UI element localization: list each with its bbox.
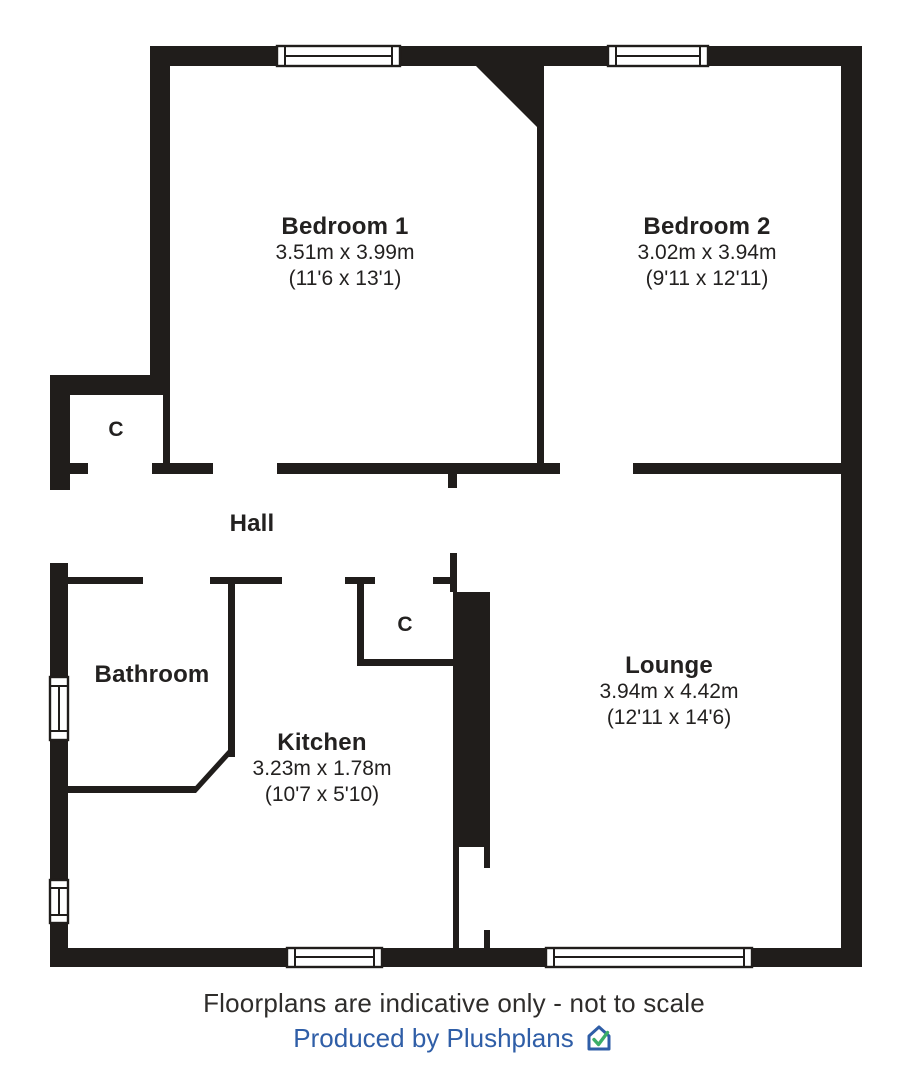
room-dims-metric: 3.51m x 3.99m: [276, 240, 415, 266]
wall-hall-top-1: [68, 463, 88, 474]
disclaimer-text: Floorplans are indicative only - not to …: [0, 988, 908, 1019]
room-dims-imperial: (10'7 x 5'10): [253, 782, 392, 808]
wall-closet-left: [50, 375, 70, 490]
wall-bathroom-bottom: [68, 786, 196, 793]
room-dims-metric: 3.94m x 4.42m: [600, 679, 739, 705]
wall-top-right: [708, 46, 860, 66]
wall-bottom-middle: [382, 948, 546, 967]
wall-kitchen-closet-top-1: [345, 577, 375, 584]
wall-bedroom-divider: [537, 125, 544, 474]
credit-text: Produced by Plushplans: [293, 1023, 573, 1054]
room-dims-imperial: (12'11 x 14'6): [600, 705, 739, 731]
wall-bathroom-right: [228, 584, 235, 757]
closet-label-hall: C: [108, 418, 123, 442]
closet-label-kitchen: C: [397, 613, 412, 637]
credit-line: Produced by Plushplans: [0, 1022, 908, 1054]
logo-checkmark: [594, 1033, 608, 1045]
room-name: Kitchen: [253, 729, 392, 756]
window-bedroom1: [277, 46, 400, 66]
wall-lounge-west-stub-2: [484, 930, 490, 948]
room-label-bedroom2: Bedroom 2 3.02m x 3.94m (9'11 x 12'11): [638, 213, 777, 292]
wall-bathroom-top-1: [68, 577, 143, 584]
window-kitchen-side: [50, 880, 68, 923]
wall-left-lower-1: [50, 563, 68, 677]
room-dims-metric: 3.02m x 3.94m: [638, 240, 777, 266]
room-label-hall: Hall: [230, 510, 275, 537]
room-label-bedroom1: Bedroom 1 3.51m x 3.99m (11'6 x 13'1): [276, 213, 415, 292]
wall-kitchen-closet-left: [357, 584, 364, 666]
wall-bathroom-top-2: [210, 577, 282, 584]
wall-hall-top-4: [633, 463, 841, 474]
wall-hall-top-2: [152, 463, 213, 474]
room-label-lounge: Lounge 3.94m x 4.42m (12'11 x 14'6): [600, 652, 739, 731]
walls: [50, 46, 862, 967]
room-dims-imperial: (11'6 x 13'1): [276, 266, 415, 292]
wall-left-upper: [150, 46, 170, 395]
wall-lounge-west-stub-1: [484, 847, 490, 868]
room-name: Hall: [230, 510, 275, 537]
floorplan-page: Bedroom 1 3.51m x 3.99m (11'6 x 13'1) Be…: [0, 0, 908, 1080]
window-bedroom2: [608, 46, 708, 66]
window-kitchen-bottom: [287, 948, 382, 967]
room-label-kitchen: Kitchen 3.23m x 1.78m (10'7 x 5'10): [253, 729, 392, 808]
wall-hall-lounge-lower: [450, 553, 457, 592]
wall-right: [841, 46, 862, 967]
room-name: Bedroom 2: [638, 213, 777, 240]
room-name: Lounge: [600, 652, 739, 679]
wall-kitchen-right-lower: [453, 847, 459, 948]
wall-hall-lounge-stub: [448, 463, 457, 488]
wall-left-lower-2: [50, 740, 68, 880]
wall-chamfer-bedrooms: [476, 66, 544, 134]
wall-top-middle: [400, 46, 608, 66]
wall-kitchen-closet-top-2: [433, 577, 457, 584]
wall-kitchen-closet-bottom: [357, 659, 453, 666]
room-dims-metric: 3.23m x 1.78m: [253, 756, 392, 782]
wall-hall-top-3: [277, 463, 560, 474]
house-check-logo-icon: [583, 1022, 615, 1054]
room-name: Bathroom: [95, 661, 210, 688]
floorplan-drawing: [0, 0, 908, 1080]
room-name: Bedroom 1: [276, 213, 415, 240]
wall-closet-right: [163, 395, 170, 470]
room-dims-imperial: (9'11 x 12'11): [638, 266, 777, 292]
wall-bottom-left: [50, 948, 287, 967]
window-lounge: [546, 948, 752, 967]
window-bathroom: [50, 677, 68, 740]
room-label-bathroom: Bathroom: [95, 661, 210, 688]
wall-block-kitchen-lounge: [453, 592, 490, 847]
